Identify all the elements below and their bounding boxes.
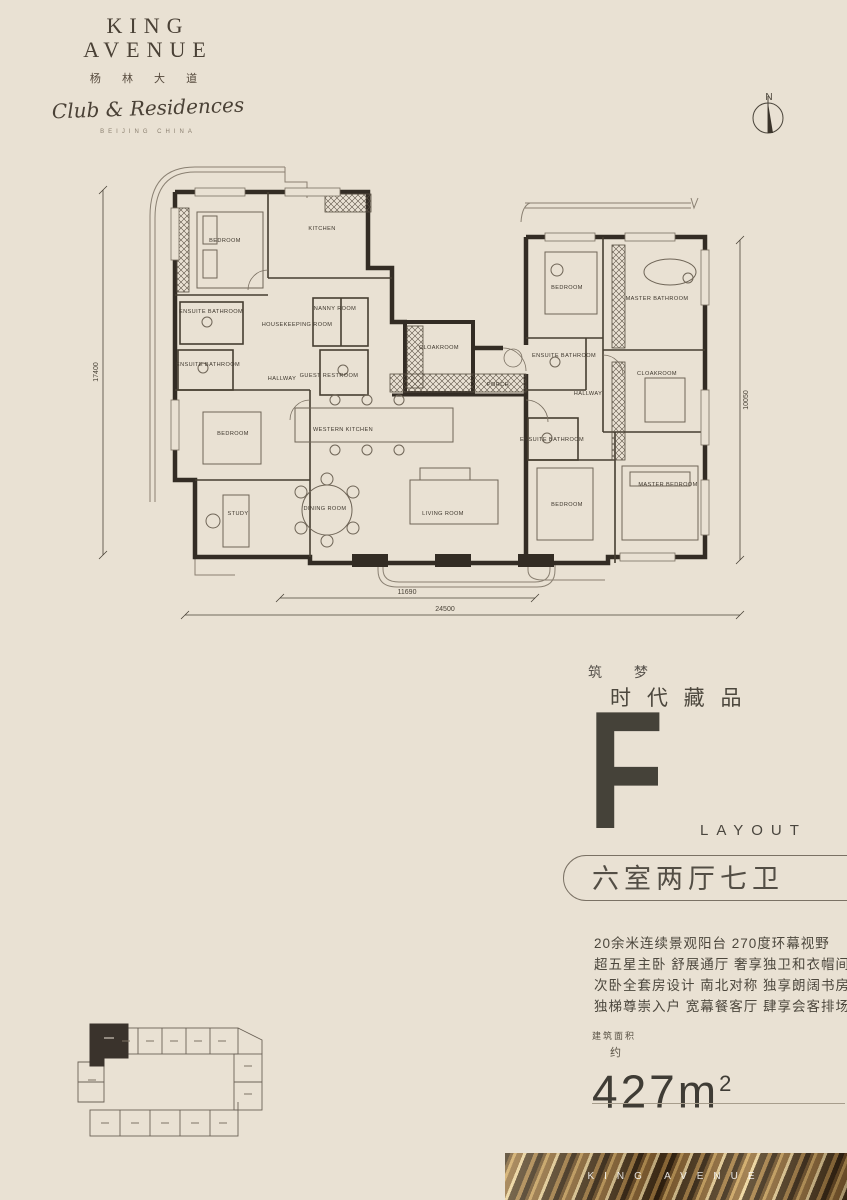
area-value: 427m2 [592, 1062, 734, 1113]
config-text: 六室两厅七卫 [592, 864, 784, 894]
room-label: ENSUITE BATHROOM [179, 309, 243, 315]
footer-banner: KING AVENUE [505, 1153, 847, 1200]
room-label: CLOAKROOM [637, 371, 677, 377]
dim-bottom-inner: 11690 [398, 589, 417, 596]
brand-name-cn: 杨 林 大 道 [38, 70, 258, 86]
config-pill: 六室两厅七卫 [563, 855, 847, 901]
room-label: WESTERN KITCHEN [313, 427, 373, 433]
feature-line: 20余米连续景观阳台 270度环幕视野 [594, 933, 847, 954]
room-label: ENSUITE BATHROOM [176, 362, 240, 368]
brand-name-en: KING AVENUE [38, 14, 258, 62]
area-label: 建筑面积 [592, 1029, 734, 1042]
wall-piers [352, 554, 554, 567]
floor-plan: BEDROOM KITCHEN ENSUITE BATHROOM NANNY R… [85, 150, 765, 642]
feature-line: 独梯尊崇入户 宽幕餐客厅 肆享会客排场 [594, 996, 847, 1017]
room-label: BEDROOM [209, 238, 241, 244]
room-label: BEDROOM [551, 285, 583, 291]
layout-type-letter: F [588, 690, 664, 850]
feature-line: 次卧全套房设计 南北对称 独享朗阔书房 [594, 975, 847, 996]
area-block: 建筑面积 约 427m2 [592, 1029, 734, 1113]
room-label: PORCH [487, 382, 509, 388]
room-label: HOUSEKEEPING ROOM [262, 322, 333, 328]
room-label: GUEST RESTROOM [300, 373, 359, 379]
footer-banner-text: KING AVENUE [587, 1171, 764, 1182]
feature-list: 20余米连续景观阳台 270度环幕视野 超五星主卧 舒展通厅 奢享独卫和衣帽间 … [594, 933, 847, 1017]
room-label: CLOAKROOM [419, 345, 459, 351]
layout-word: LAYOUT [700, 822, 807, 839]
room-label: BEDROOM [217, 431, 249, 437]
room-label: HALLWAY [268, 376, 297, 382]
north-compass: N [738, 86, 798, 152]
keyplan-highlighted-unit [90, 1024, 128, 1066]
room-label: MASTER BATHROOM [626, 296, 689, 302]
room-label: NANNY ROOM [314, 306, 356, 312]
area-approx: 约 [610, 1044, 734, 1060]
area-underline [592, 1103, 845, 1104]
compass-needle-icon [768, 103, 773, 133]
north-label: N [765, 92, 772, 103]
key-site-plan [76, 1018, 271, 1140]
room-label: ENSUITE BATHROOM [532, 353, 596, 359]
brand-logo: KING AVENUE 杨 林 大 道 Club & Residences BE… [38, 14, 258, 135]
area-unit: m [678, 1065, 719, 1117]
brand-name-line2: AVENUE [38, 38, 258, 62]
room-label: STUDY [228, 511, 249, 517]
brand-name-line1: KING [38, 14, 258, 38]
room-label: LIVING ROOM [422, 511, 464, 517]
room-label: KITCHEN [308, 226, 335, 232]
room-label: DINING ROOM [304, 506, 347, 512]
room-label: BEDROOM [551, 502, 583, 508]
room-label: HALLWAY [574, 391, 603, 397]
poster-page: KING AVENUE 杨 林 大 道 Club & Residences BE… [0, 0, 847, 1200]
area-number: 427 [592, 1065, 678, 1117]
room-label: ENSUITE BATHROOM [520, 437, 584, 443]
brand-script-name: Club & Residences [38, 92, 259, 124]
area-sup: 2 [719, 1071, 734, 1096]
dim-right: 10050 [743, 390, 750, 410]
brand-location: BEIJING CHINA [38, 129, 258, 135]
room-label: MASTER BEDROOM [638, 482, 697, 488]
dim-bottom-outer: 24500 [435, 606, 455, 613]
dim-left: 17400 [93, 362, 100, 382]
feature-line: 超五星主卧 舒展通厅 奢享独卫和衣帽间 [594, 954, 847, 975]
